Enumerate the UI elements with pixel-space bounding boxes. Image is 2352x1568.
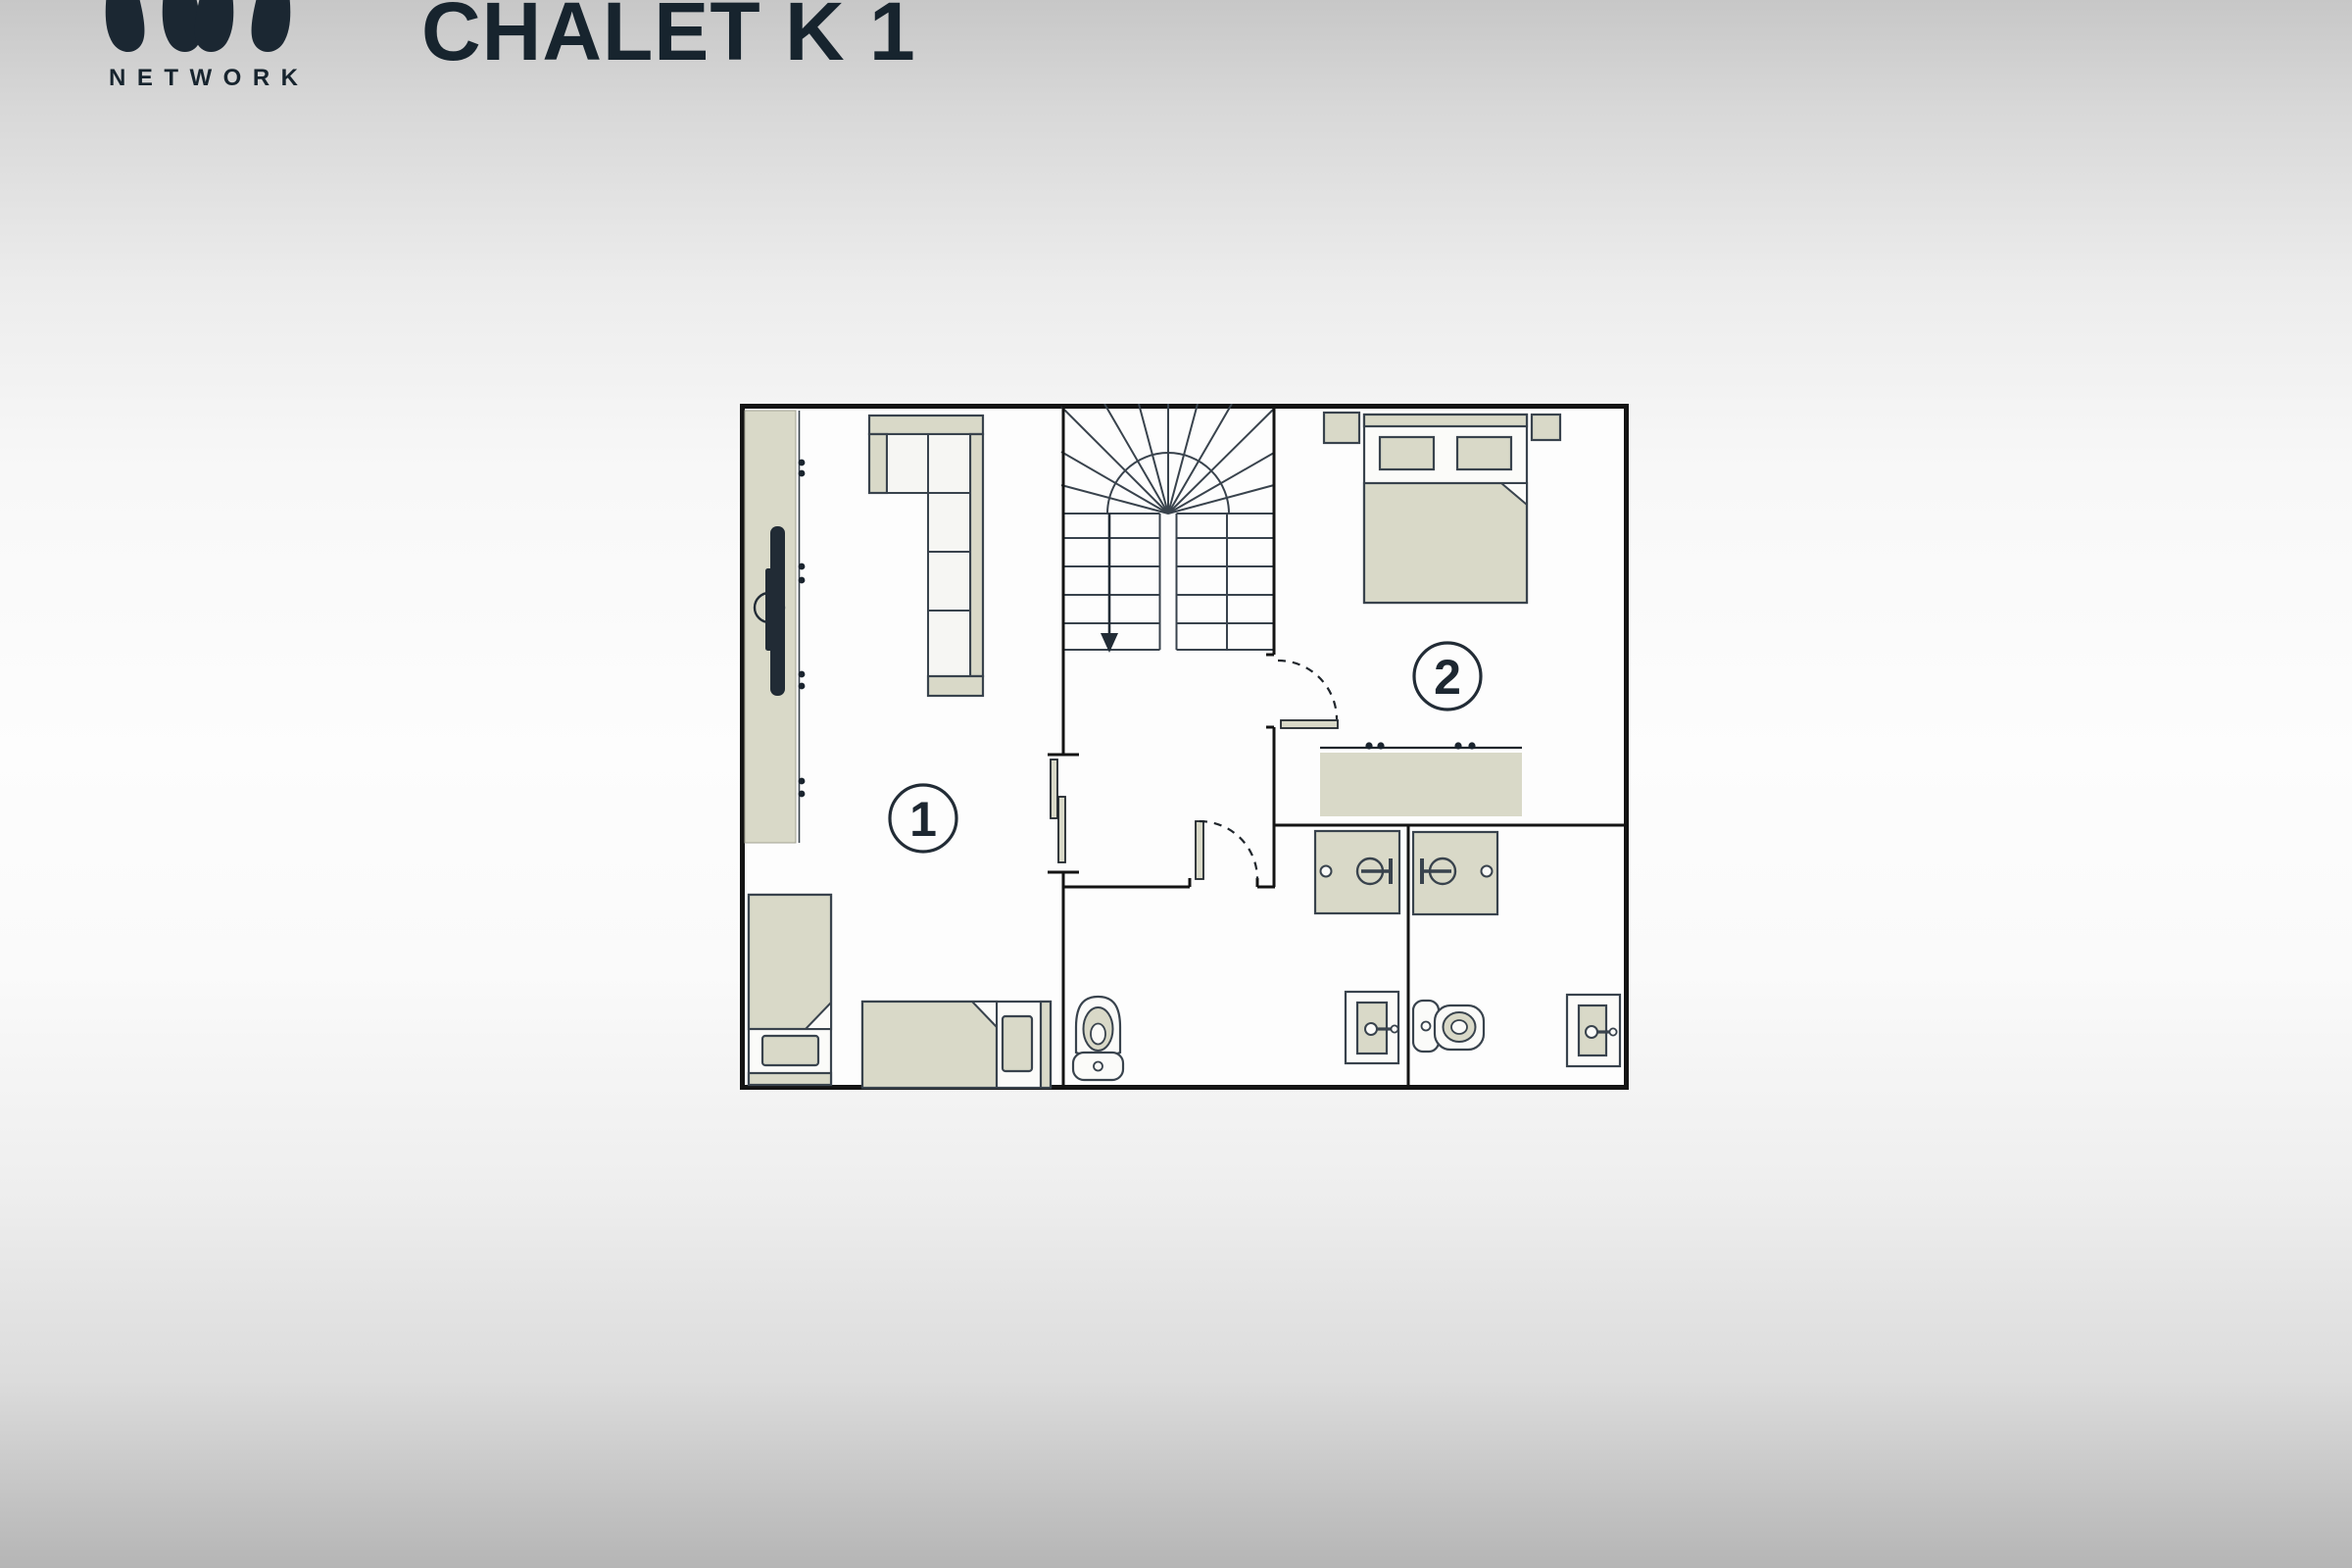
room-2-number: 2: [1434, 650, 1461, 705]
page-title: CHALET K 1: [421, 0, 916, 79]
logo-caption: NETWORK: [109, 65, 309, 92]
nightstand-right: [1532, 415, 1560, 440]
brand-logo: NETWORK: [101, 0, 317, 98]
double-sink-vanity: [1320, 742, 1522, 816]
room-1-number: 1: [909, 792, 937, 847]
nightstand-left: [1324, 413, 1359, 443]
shower-1: [1315, 831, 1399, 913]
washbasin-2-icon: [1567, 995, 1620, 1066]
ovo-logo-icon: [101, 0, 307, 57]
washbasin-1-icon: [1346, 992, 1398, 1063]
double-bed: [1364, 415, 1527, 603]
room-label-1: 1: [890, 785, 956, 852]
toilet-1-icon: [1073, 997, 1123, 1080]
floorplan: 1: [740, 404, 1629, 1090]
shower-2: [1413, 832, 1497, 914]
room-label-2: 2: [1414, 643, 1481, 710]
single-bed-vertical: [749, 895, 831, 1085]
toilet-2-icon: [1413, 1001, 1484, 1052]
single-bed-horizontal: [862, 1002, 1051, 1088]
